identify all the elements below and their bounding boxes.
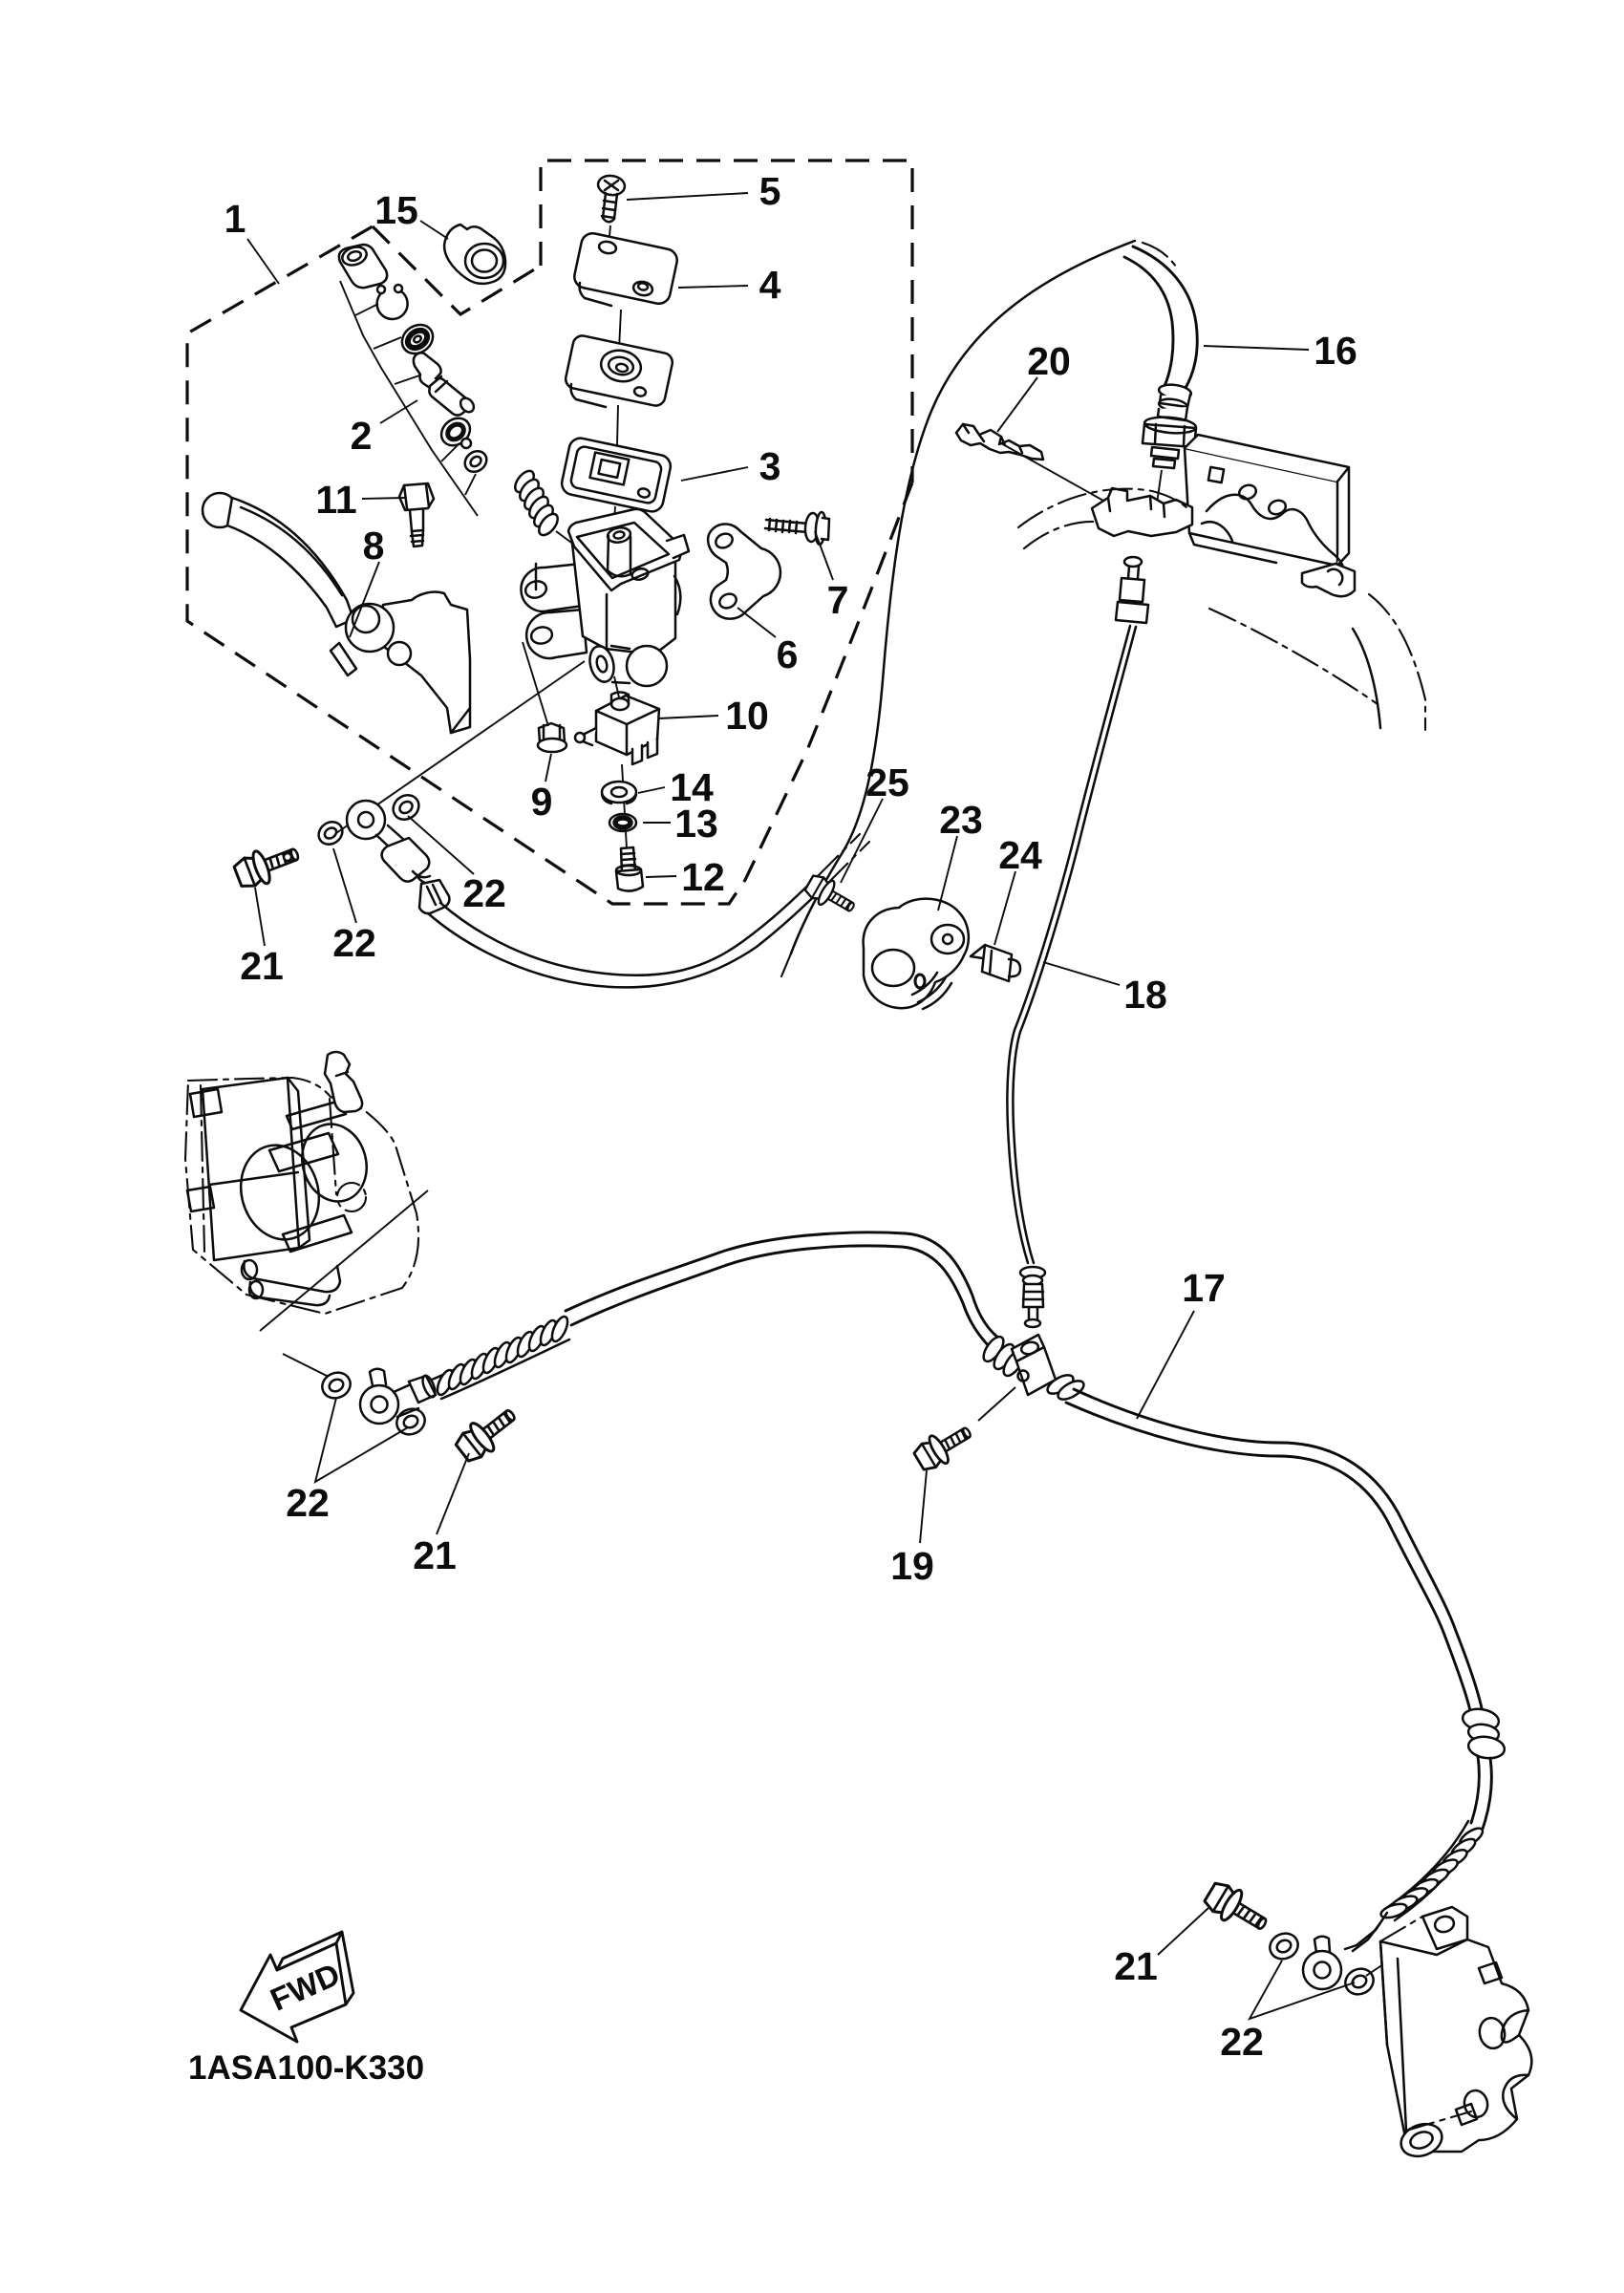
svg-text:1: 1 [224,197,246,241]
svg-text:17: 17 [1182,1266,1226,1310]
svg-text:19: 19 [890,1544,934,1588]
svg-text:16: 16 [1314,329,1357,373]
svg-text:22: 22 [332,921,376,965]
svg-text:20: 20 [1027,339,1071,383]
svg-text:21: 21 [240,944,284,988]
svg-text:14: 14 [670,765,714,809]
svg-text:10: 10 [725,694,769,738]
svg-text:24: 24 [998,833,1042,877]
svg-text:25: 25 [865,761,909,804]
svg-text:18: 18 [1123,973,1167,1017]
svg-text:22: 22 [1220,2020,1264,2064]
svg-text:7: 7 [827,578,849,622]
svg-text:23: 23 [939,798,983,842]
svg-text:1ASA100-K330: 1ASA100-K330 [188,2049,424,2087]
svg-text:9: 9 [531,780,553,824]
svg-text:3: 3 [759,444,781,488]
svg-text:4: 4 [759,263,781,307]
svg-text:22: 22 [462,871,506,915]
svg-text:21: 21 [413,1533,457,1577]
svg-text:11: 11 [315,478,356,522]
svg-text:5: 5 [759,169,781,213]
svg-text:21: 21 [1114,1944,1158,1988]
svg-text:6: 6 [777,632,799,676]
svg-text:12: 12 [681,855,725,899]
svg-text:15: 15 [374,188,418,232]
svg-text:8: 8 [363,524,385,568]
svg-text:22: 22 [286,1481,330,1525]
svg-text:2: 2 [351,414,373,458]
